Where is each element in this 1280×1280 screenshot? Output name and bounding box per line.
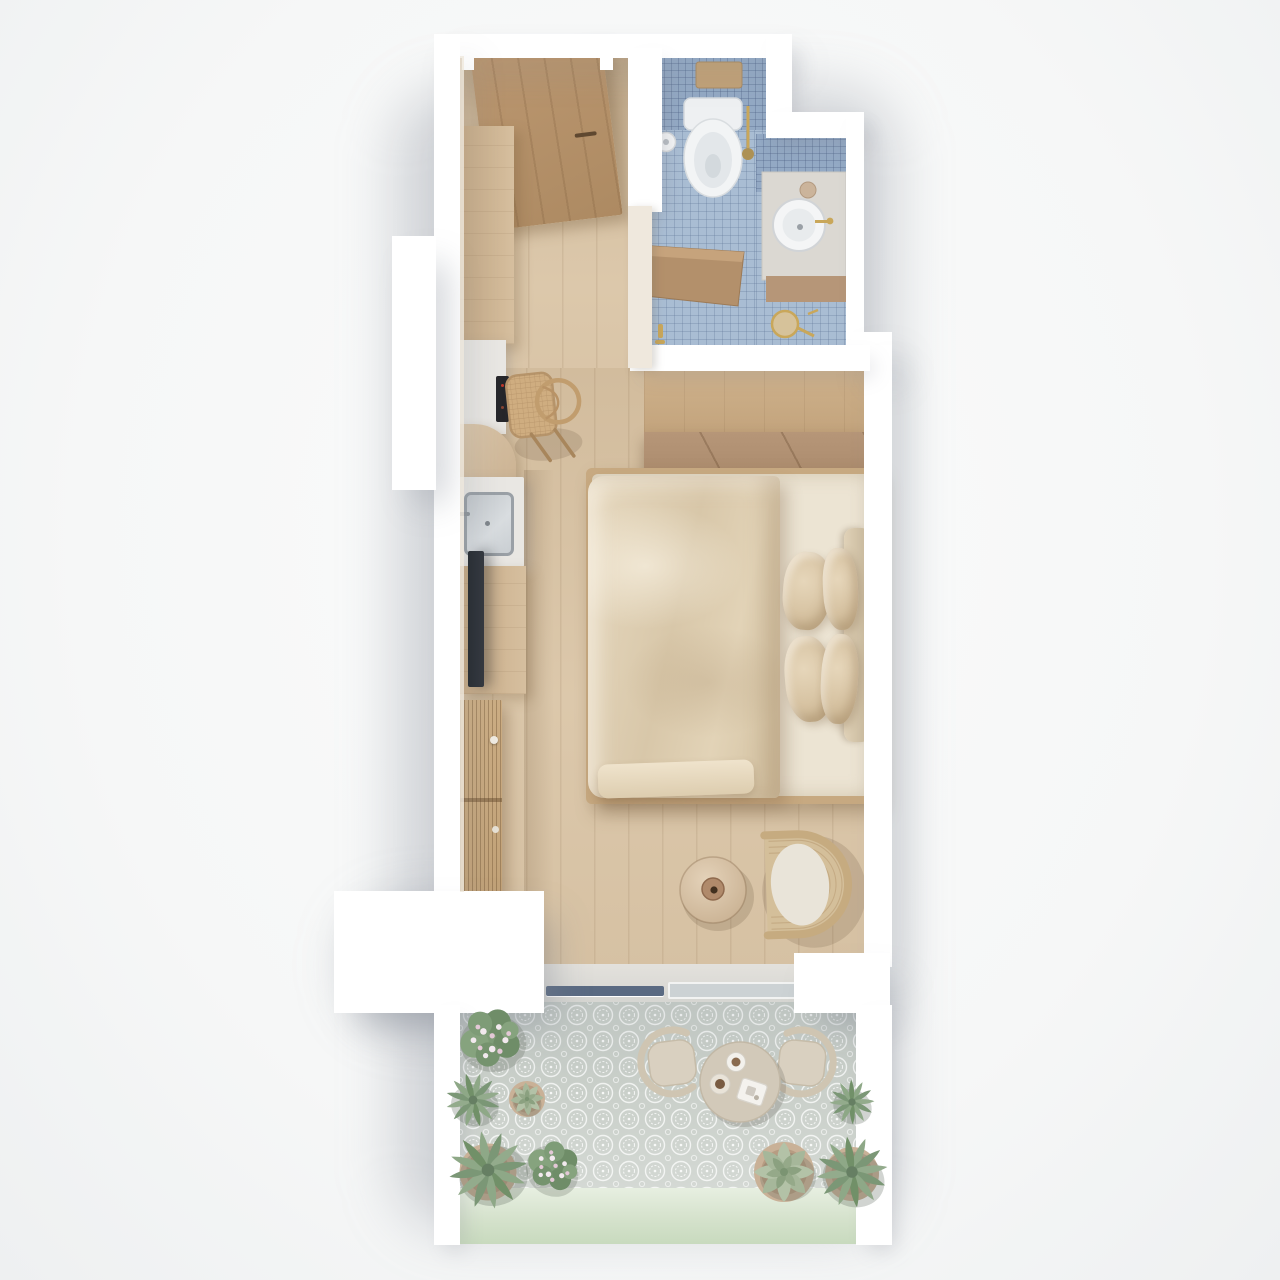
tall-kitchen-cabinet: [458, 126, 514, 344]
bathroom-fixtures-layer: [640, 40, 860, 370]
agave-big: [443, 1125, 534, 1216]
bistro-chair-left: [637, 1027, 699, 1097]
shower-drain: [772, 310, 818, 337]
bistro-table: [700, 1042, 786, 1127]
door-frame-right: [600, 50, 613, 70]
door-handle: [575, 131, 597, 138]
wall-bedroom-right: [864, 345, 892, 967]
brass-valves: [655, 324, 665, 344]
floorplan-render: [0, 0, 1280, 1280]
wall-left-inner-face: [460, 56, 464, 892]
agave-1: [440, 1067, 507, 1134]
vanity-vase: [800, 182, 816, 198]
wall-hung-toilet: [684, 98, 742, 197]
wall-left-bump: [392, 236, 436, 490]
balcony-layer: [400, 960, 900, 1280]
wall-partition-bathroom: [628, 48, 662, 212]
round-side-table: [680, 857, 754, 931]
rattan-armchair: [760, 832, 868, 950]
wall-top: [436, 34, 792, 58]
flower-bush-2: [516, 1132, 592, 1208]
flower-bush-1: [460, 1009, 526, 1072]
agave-right: [806, 1126, 899, 1219]
echeveria-big: [754, 1142, 816, 1202]
cane-chair: [505, 369, 585, 464]
vanity: [762, 172, 846, 302]
wooden-flush-plate: [696, 62, 742, 88]
half-wall-bathroom: [628, 206, 652, 368]
wall-left: [434, 34, 460, 898]
bathroom-wooden-door-leaf: [646, 246, 744, 306]
wall-behind-wardrobe: [630, 345, 870, 371]
brass-toilet-brush: [742, 106, 754, 160]
wall-bath-right: [846, 112, 864, 352]
room-furniture-layer: [440, 350, 900, 970]
